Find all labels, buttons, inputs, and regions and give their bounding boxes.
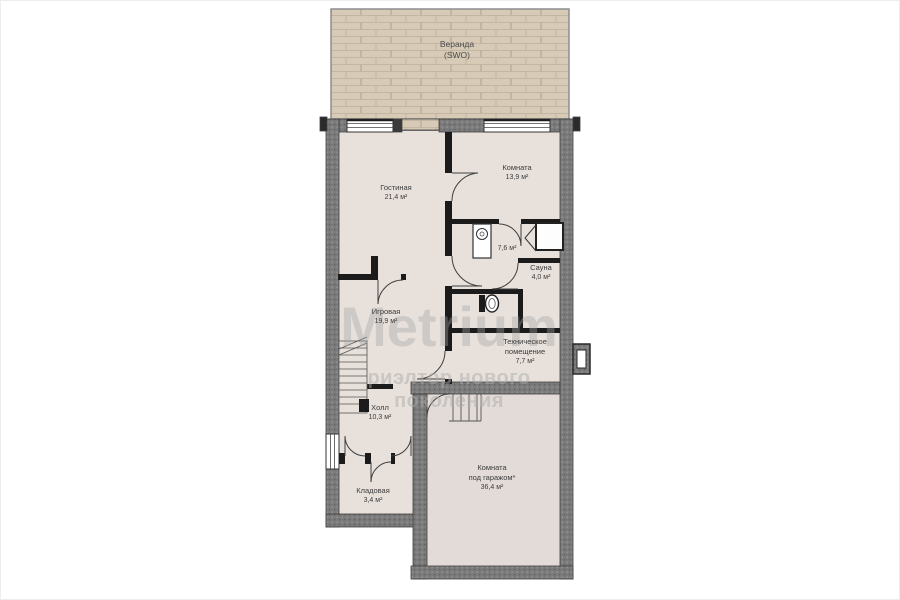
veranda-name: Веранда [440,39,474,50]
technical-name-2: помещение [503,347,547,357]
playroom-area: 19,9 м² [372,317,401,326]
window-hall-left [326,434,339,469]
floor-plan-page: Metrium риэлтор нового поколения Веранда… [0,0,900,600]
living-name: Гостиная [380,183,411,193]
sauna-name: Сауна [530,263,552,273]
toilet-icon [479,295,499,312]
veranda-label: Веранда (SWO) [440,39,474,61]
storage-area: 3,4 м² [356,496,390,505]
window-top-right [484,119,550,132]
bedroom-name: Комната [502,163,531,173]
bathroom-label: 7,6 м² [498,244,517,253]
floor-plan-canvas [1,1,900,600]
hall-label: Холл 10,3 м² [369,403,392,422]
bathroom-area: 7,6 м² [498,244,517,253]
veranda-deck [331,9,569,119]
staircase [339,337,369,413]
window-top-left [347,119,393,132]
living-area: 21,4 м² [380,193,411,202]
washer-icon [473,224,491,258]
technical-name-1: Техническое [503,337,547,347]
garage-room-label: Комната под гаражом* 36,4 м² [469,463,516,492]
garage-room-name-2: под гаражом* [469,473,516,483]
veranda-note: (SWO) [440,50,474,61]
playroom-name: Игровая [372,307,401,317]
technical-area: 7,7 м² [503,357,547,366]
playroom-label: Игровая 19,9 м² [372,307,401,326]
garage-room-name-1: Комната [469,463,516,473]
hall-name: Холл [369,403,392,413]
technical-label: Техническое помещение 7,7 м² [503,337,547,366]
chimney [573,344,590,374]
garage-room-area: 36,4 м² [469,483,516,492]
living-label: Гостиная 21,4 м² [380,183,411,202]
bedroom-label: Комната 13,9 м² [502,163,531,182]
hall-area: 10,3 м² [369,413,392,422]
sauna-label: Сауна 4,0 м² [530,263,552,282]
storage-name: Кладовая [356,486,390,496]
sauna-area: 4,0 м² [530,273,552,282]
bedroom-area: 13,9 м² [502,173,531,182]
storage-label: Кладовая 3,4 м² [356,486,390,505]
